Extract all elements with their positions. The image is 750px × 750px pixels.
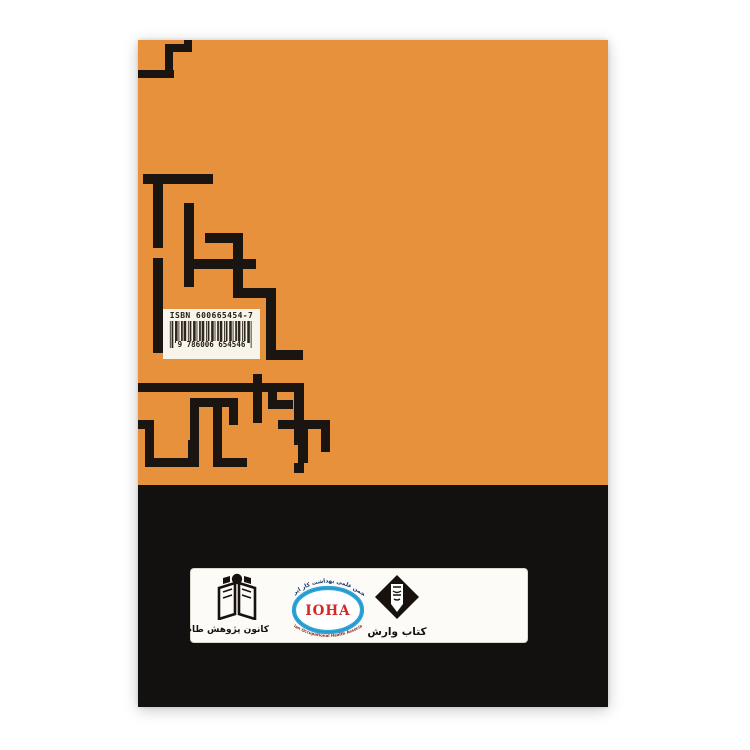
isbn-number: ISBN 600665454-7 — [170, 311, 253, 321]
cover-black-section: کانون پژوهش طام انجمن علمی بهداشت کار ای… — [138, 485, 608, 707]
barcode-digits: 9 786006 654546 — [176, 341, 248, 349]
taam-logo-label: کانون پژوهش طام — [205, 625, 269, 635]
book-back-cover: ISBN 600665454-7 9 786006 654546 — [138, 40, 608, 707]
diamond-pencil-icon — [374, 574, 420, 620]
ioha-oval-icon: انجمن علمی بهداشت کار ایران IOHA Iranian… — [287, 569, 369, 643]
taam-research-logo: کانون پژوهش طام — [205, 572, 269, 641]
cover-orange-section: ISBN 600665454-7 9 786006 654546 — [138, 40, 608, 485]
ioha-acronym: IOHA — [305, 603, 350, 619]
maze-pattern-decoration — [138, 40, 608, 485]
product-image-canvas: ISBN 600665454-7 9 786006 654546 — [0, 0, 750, 750]
varesh-books-logo: کتاب وارش — [365, 574, 429, 641]
ioha-logo: انجمن علمی بهداشت کار ایران IOHA Iranian… — [287, 569, 369, 643]
isbn-barcode: ISBN 600665454-7 9 786006 654546 — [163, 309, 260, 359]
open-book-reader-icon — [213, 572, 261, 620]
varesh-logo-label: کتاب وارش — [365, 626, 429, 638]
publisher-logo-band: کانون پژوهش طام انجمن علمی بهداشت کار ای… — [190, 568, 528, 643]
